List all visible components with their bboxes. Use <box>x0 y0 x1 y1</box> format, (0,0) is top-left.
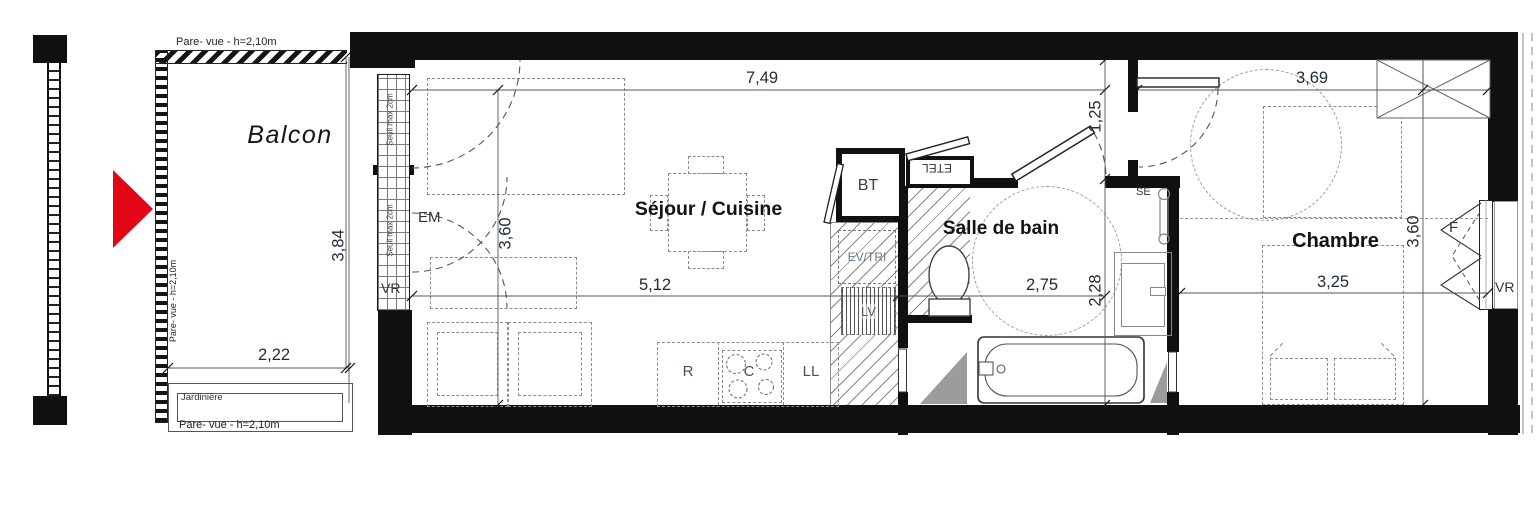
annotation-pare-vue-top: Pare- vue - h=2,10m <box>176 36 277 48</box>
label-cooktop: C <box>737 363 761 380</box>
dim-balcon-depth: 3,84 <box>330 216 349 276</box>
dim-sejour-depth: 3,60 <box>497 204 516 264</box>
chambre-door-leaf <box>1137 78 1219 87</box>
annotation-seuil-top: Seuil max 2cm <box>386 80 395 160</box>
floor-plan: EV/TRI LV <box>0 0 1538 520</box>
bath-door-shade-right <box>1150 362 1167 403</box>
label-vr-balcony: VR <box>381 280 400 296</box>
dim-bath-width: 2,75 <box>1002 276 1082 295</box>
bathtub <box>978 337 1144 403</box>
entrance-arrow <box>113 170 153 248</box>
duct-shaft <box>1377 60 1490 118</box>
dim-chambre-width: 3,69 <box>1272 69 1352 88</box>
entry-door-leaf <box>1012 126 1095 181</box>
label-fridge: R <box>676 363 700 380</box>
dim-sejour-width: 7,49 <box>722 69 802 88</box>
closet-door-leaf <box>906 137 970 161</box>
room-label-balcon: Balcon <box>230 121 350 150</box>
annotation-pare-vue-bottom: Pare- vue - h=2,10m <box>179 419 280 431</box>
label-em: EM <box>418 209 441 226</box>
bath-door-right-leaf <box>1169 352 1177 392</box>
towel-dryer <box>1159 189 1170 245</box>
window-casement-symbol <box>1441 200 1486 310</box>
bed-corner-marks <box>1270 341 1394 356</box>
room-label-salle-de-bain: Salle de bain <box>926 218 1076 240</box>
label-washer: LL <box>797 363 825 380</box>
dim-entry-passage: 1,25 <box>1087 87 1106 147</box>
label-vr-bedroom: VR <box>1495 279 1514 295</box>
room-label-chambre: Chambre <box>1283 230 1388 253</box>
label-window-f: F <box>1449 219 1458 236</box>
annotation-jardiniere: Jardinière <box>181 392 223 403</box>
dim-chambre-depth: 3,60 <box>1405 202 1424 262</box>
bath-door-shade-left <box>920 352 967 404</box>
bath-door-left-leaf <box>899 349 907 392</box>
bt-door-leaf <box>824 164 843 224</box>
toilet <box>929 246 970 316</box>
label-towel-dryer: SE <box>1136 186 1151 198</box>
annotation-seuil-bottom: Seuil max 2cm <box>386 191 395 271</box>
dim-bath-depth: 2,28 <box>1087 261 1106 321</box>
dim-chambre-bed-wall: 3,25 <box>1293 273 1373 292</box>
dim-balcon-width: 2,22 <box>234 346 314 365</box>
annotation-pare-vue-left: Pare- vue - h=2,10m <box>168 236 178 366</box>
label-bt: BT <box>846 177 890 195</box>
dim-kitchen-run: 5,12 <box>615 276 695 295</box>
room-label-sejour: Séjour / Cuisine <box>616 198 801 221</box>
label-etel: ETEL <box>908 161 966 175</box>
